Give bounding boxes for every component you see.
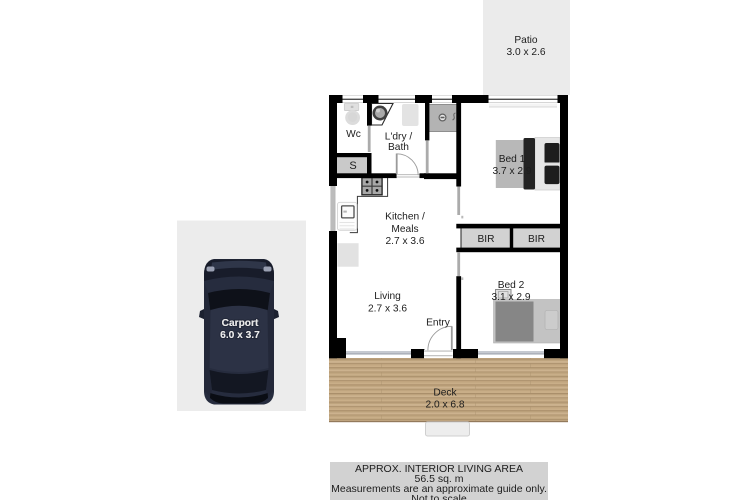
svg-text:3.1 x 2.9: 3.1 x 2.9: [491, 292, 530, 303]
svg-text:Living: Living: [374, 291, 401, 302]
svg-text:BIR: BIR: [528, 234, 545, 245]
svg-text:Patio: Patio: [514, 35, 538, 46]
svg-text:Bed 1: Bed 1: [499, 154, 526, 165]
svg-text:2.7 x 3.6: 2.7 x 3.6: [385, 236, 424, 247]
svg-text:6.0 x 3.7: 6.0 x 3.7: [220, 330, 260, 341]
svg-text:Wc: Wc: [346, 129, 361, 140]
svg-text:L'dry /: L'dry /: [385, 132, 413, 143]
svg-text:Bed 2: Bed 2: [498, 280, 525, 291]
svg-text:S: S: [349, 160, 356, 172]
svg-text:2.7 x 3.6: 2.7 x 3.6: [368, 304, 407, 315]
svg-text:Meals: Meals: [391, 224, 418, 235]
svg-text:BIR: BIR: [478, 234, 495, 245]
svg-text:Not to scale: Not to scale: [411, 493, 467, 500]
svg-text:Carport: Carport: [222, 318, 259, 329]
svg-text:Entry: Entry: [426, 317, 451, 328]
svg-text:3.0 x 2.6: 3.0 x 2.6: [506, 47, 545, 58]
svg-text:Bath: Bath: [388, 142, 409, 153]
svg-text:3.7 x 2.9: 3.7 x 2.9: [492, 166, 531, 177]
svg-text:Deck: Deck: [433, 388, 457, 399]
svg-text:Kitchen /: Kitchen /: [385, 212, 425, 223]
svg-text:2.0 x 6.8: 2.0 x 6.8: [425, 400, 464, 411]
